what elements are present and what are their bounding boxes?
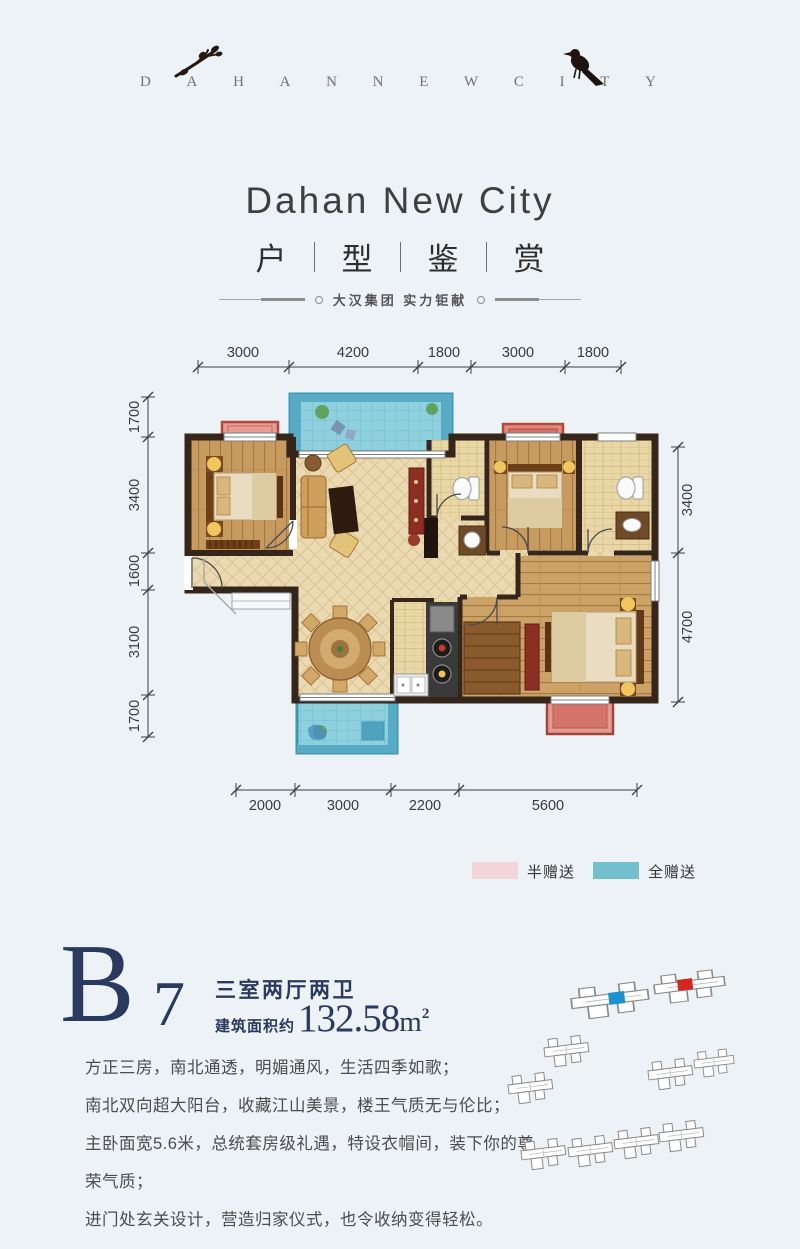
ornament-line (219, 299, 305, 300)
subtitle-divider (486, 242, 487, 272)
site-highlight-unit (677, 978, 693, 991)
flyer-page: D A H A N N E W C I T Y Dahan New City 户… (0, 0, 800, 1249)
subtitle-char: 赏 (514, 234, 545, 279)
site-building (567, 1135, 614, 1168)
dim-top: 4200 (337, 345, 369, 361)
page-subtitle: 户 型 鉴 赏 (0, 234, 800, 279)
page-title: Dahan New City (0, 180, 800, 222)
site-building (613, 1127, 660, 1160)
description-line: 主卧面宽5.6米，总统套房级礼遇，特设衣帽间，装下你的尊荣气质； (85, 1125, 545, 1201)
unit-code-letter: B (60, 928, 135, 1040)
brand-letter: C (514, 74, 524, 91)
site-building (693, 1048, 735, 1078)
brand-letter: E (419, 74, 428, 91)
brand-letter: N (326, 74, 337, 91)
dim-left: 1700 (127, 700, 143, 732)
tagline-text: 大汉集团 实力钜献 (333, 290, 468, 309)
brand-letter: N (373, 74, 384, 91)
site-building (647, 1058, 694, 1091)
brand-letter: A (187, 74, 198, 91)
subtitle-char: 型 (342, 234, 373, 279)
subtitle-char: 户 (256, 234, 287, 279)
area-value: 132.58 (298, 996, 399, 1041)
site-building (543, 1035, 590, 1068)
brand-letters: D A H A N N E W C I T Y (140, 74, 656, 91)
site-building (658, 1120, 705, 1153)
area-unit: m (399, 1006, 422, 1039)
tagline-ornament: 大汉集团 实力钜献 (0, 290, 800, 309)
brand-letter: A (280, 74, 291, 91)
dim-left: 3100 (127, 626, 143, 658)
dim-bottom: 3000 (327, 798, 359, 814)
description-block: 方正三房，南北通透，明媚通风，生活四季如歌； 南北双向超大阳台，收藏江山美景，楼… (85, 1049, 545, 1239)
dim-right: 3400 (680, 484, 696, 516)
floor-plan: 3000 4200 1800 3000 1800 2000 3000 2200 … (0, 330, 800, 850)
brand-letter: T (600, 74, 609, 91)
dim-left: 1600 (127, 555, 143, 587)
area-unit-sup: 2 (422, 1006, 430, 1023)
site-plan-map (490, 952, 790, 1217)
subtitle-divider (400, 242, 401, 272)
dim-left: 1700 (127, 401, 143, 433)
brand-letter: D (140, 74, 151, 91)
ornament-ring (315, 296, 323, 304)
brand-letter: I (560, 74, 565, 91)
legend-full-gift-label: 全赠送 (648, 861, 696, 882)
site-highlight-unit (608, 991, 625, 1005)
dim-right: 4700 (680, 611, 696, 643)
site-building (520, 1138, 567, 1171)
brand-letter: H (233, 74, 244, 91)
unit-code-number: 7 (153, 972, 185, 1036)
site-building (507, 1072, 554, 1105)
legend-half-gift-label: 半赠送 (527, 861, 575, 882)
dim-top: 3000 (227, 345, 259, 361)
dim-top: 3000 (502, 345, 534, 361)
legend-full-gift-swatch (593, 862, 639, 879)
south-balcony-full-gift (297, 695, 397, 753)
subtitle-char: 鉴 (428, 234, 459, 279)
dim-top: 1800 (577, 345, 609, 361)
dim-top: 1800 (428, 345, 460, 361)
dim-bottom: 2000 (249, 798, 281, 814)
dining-furniture (295, 606, 385, 692)
dim-left: 3400 (127, 479, 143, 511)
wall-chunk (424, 518, 438, 558)
brand-letter: W (464, 74, 478, 91)
ornament-line (495, 299, 581, 300)
dim-bottom: 5600 (532, 798, 564, 814)
dim-bottom: 2200 (409, 798, 441, 814)
description-line: 方正三房，南北通透，明媚通风，生活四季如歌； (85, 1049, 545, 1087)
unit-area: 建筑面积约 132.58 m 2 (215, 996, 429, 1041)
legend-half-gift-swatch (472, 862, 518, 879)
area-prefix: 建筑面积约 (215, 1015, 295, 1036)
description-line: 南北双向超大阳台，收藏江山美景，楼王气质无与伦比； (85, 1087, 545, 1125)
ornament-ring (477, 296, 485, 304)
brand-letter: Y (645, 74, 656, 91)
subtitle-divider (314, 242, 315, 272)
description-line: 进门处玄关设计，营造归家仪式，也令收纳变得轻松。 (85, 1201, 545, 1239)
